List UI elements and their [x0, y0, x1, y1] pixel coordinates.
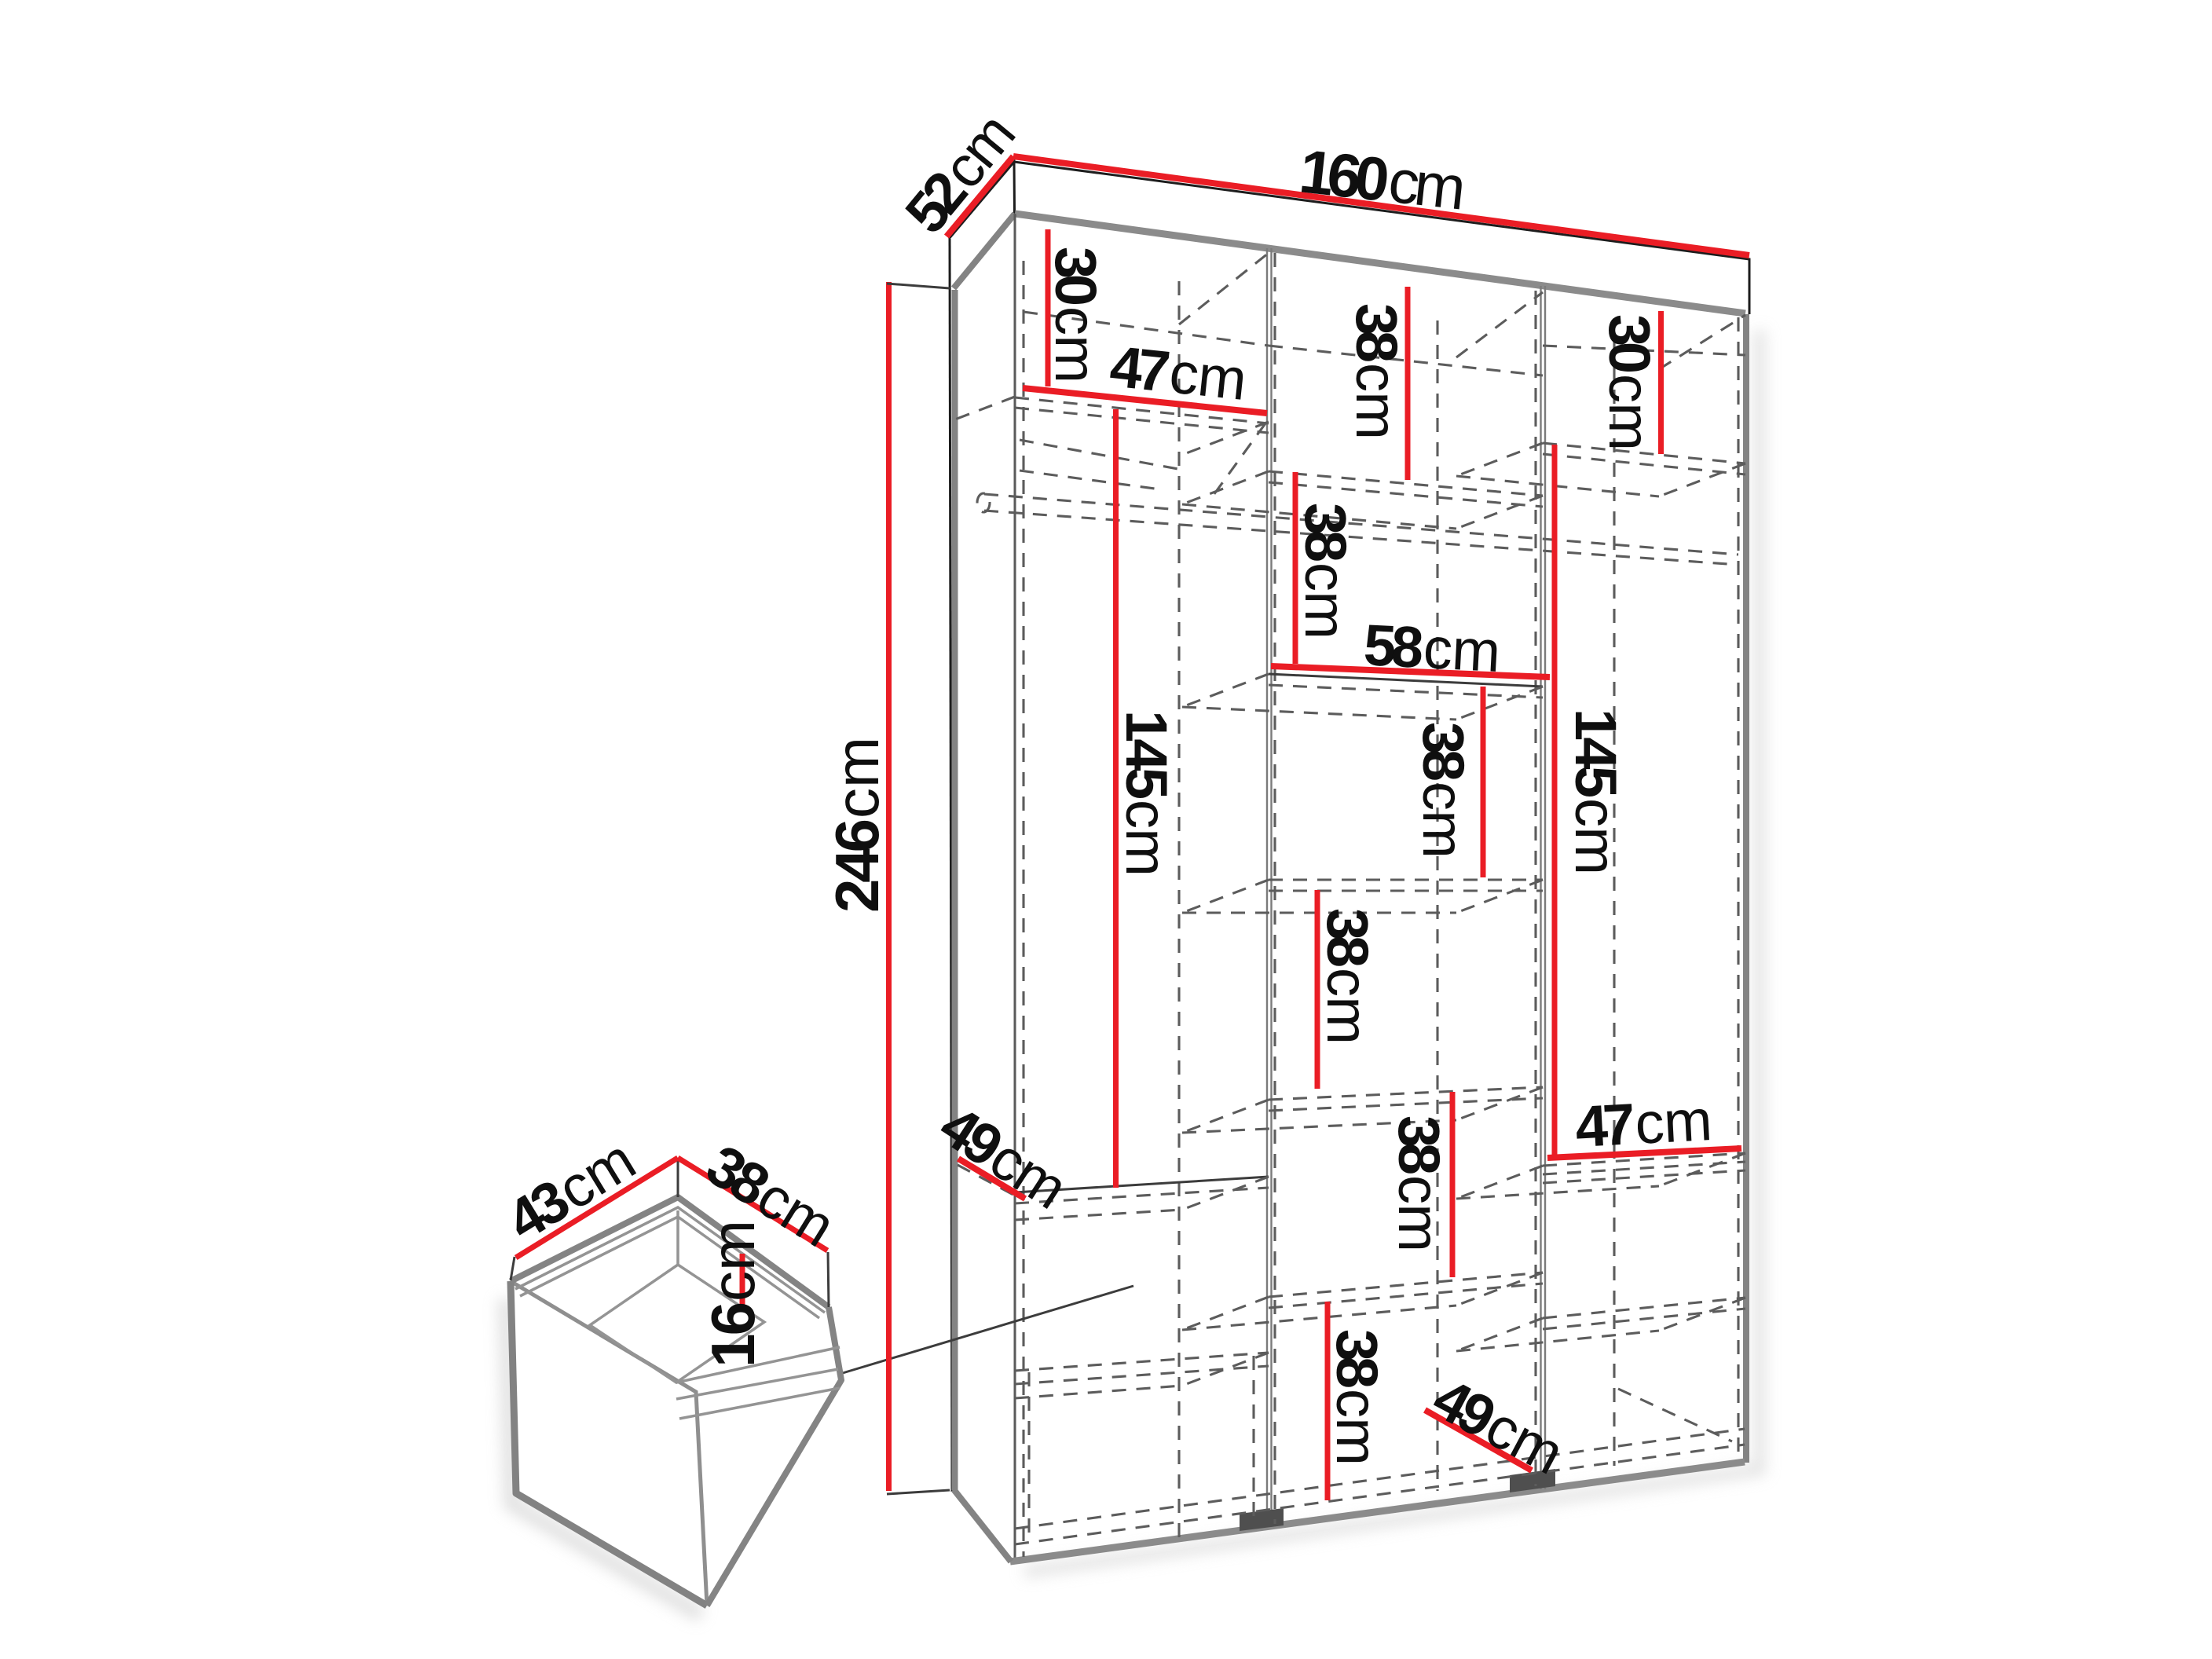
svg-text:cm: cm: [822, 737, 892, 819]
svg-text:cm: cm: [1411, 782, 1476, 859]
svg-text:47: 47: [1573, 1091, 1636, 1159]
svg-text:38: 38: [1344, 303, 1409, 363]
svg-text:cm: cm: [1385, 146, 1469, 223]
svg-text:cm: cm: [698, 1220, 767, 1302]
svg-text:58: 58: [1362, 612, 1425, 680]
svg-text:cm: cm: [1563, 798, 1628, 875]
svg-text:47: 47: [1107, 333, 1173, 404]
svg-text:38: 38: [1411, 722, 1476, 782]
svg-text:cm: cm: [1344, 363, 1409, 440]
svg-text:145: 145: [1563, 709, 1628, 798]
svg-text:246: 246: [822, 819, 892, 913]
svg-text:cm: cm: [1114, 800, 1179, 877]
svg-text:38: 38: [1324, 1329, 1390, 1389]
svg-text:cm: cm: [1293, 562, 1358, 639]
svg-text:cm: cm: [1166, 339, 1250, 412]
svg-text:38: 38: [1293, 503, 1358, 562]
svg-text:cm: cm: [1386, 1175, 1452, 1252]
svg-text:cm: cm: [1633, 1087, 1713, 1156]
svg-text:cm: cm: [1043, 306, 1108, 383]
svg-text:38: 38: [1315, 908, 1380, 968]
svg-text:cm: cm: [1422, 615, 1502, 684]
svg-text:cm: cm: [1324, 1389, 1390, 1466]
svg-text:38: 38: [1386, 1115, 1452, 1175]
svg-text:30: 30: [1043, 247, 1108, 306]
svg-text:160: 160: [1296, 136, 1393, 214]
svg-text:16: 16: [698, 1302, 767, 1368]
svg-text:30: 30: [1597, 314, 1662, 374]
svg-text:145: 145: [1114, 710, 1179, 800]
svg-text:cm: cm: [1315, 968, 1380, 1045]
svg-text:cm: cm: [1597, 374, 1662, 451]
